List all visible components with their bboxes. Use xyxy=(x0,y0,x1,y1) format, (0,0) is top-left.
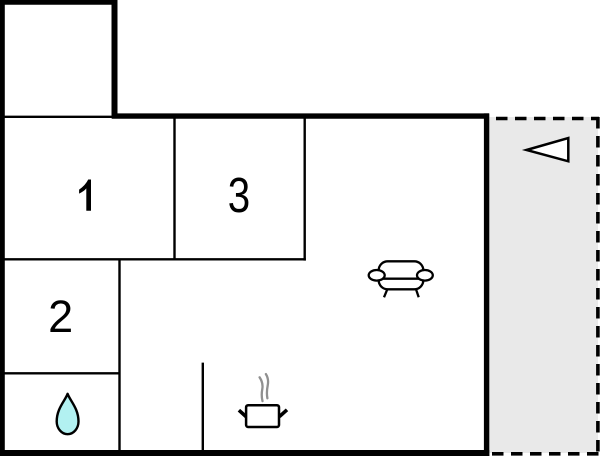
svg-text:3: 3 xyxy=(228,167,250,223)
svg-text:2: 2 xyxy=(48,291,73,342)
